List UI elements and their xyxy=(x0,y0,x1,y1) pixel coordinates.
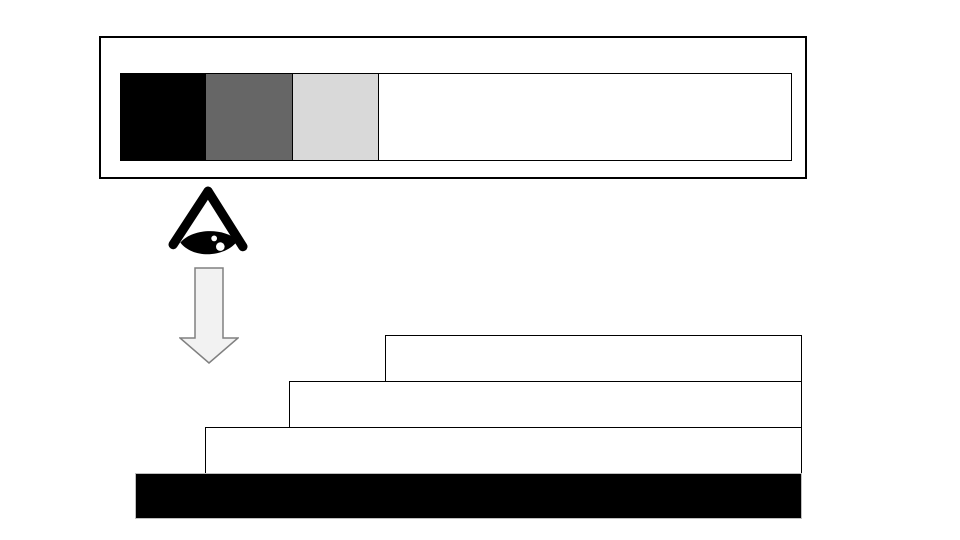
segmented-bar xyxy=(120,73,792,161)
stack-row-2 xyxy=(289,381,802,428)
bar-segment-dark-gray xyxy=(206,74,293,160)
eye-highlight-small xyxy=(211,236,217,242)
eye-pupil-shape xyxy=(180,231,237,254)
slide-canvas xyxy=(0,0,960,540)
eye-icon xyxy=(168,186,248,258)
segmented-bar-frame xyxy=(99,36,807,179)
bar-segment-light-gray xyxy=(293,74,379,160)
down-arrow-shape xyxy=(180,268,238,363)
stack-row-3 xyxy=(205,427,802,474)
eye-highlight-large xyxy=(216,242,225,251)
bar-segment-black xyxy=(121,74,206,160)
down-arrow-icon xyxy=(179,267,239,364)
stack-row-1 xyxy=(385,335,802,382)
stack-base-bar xyxy=(135,473,802,519)
